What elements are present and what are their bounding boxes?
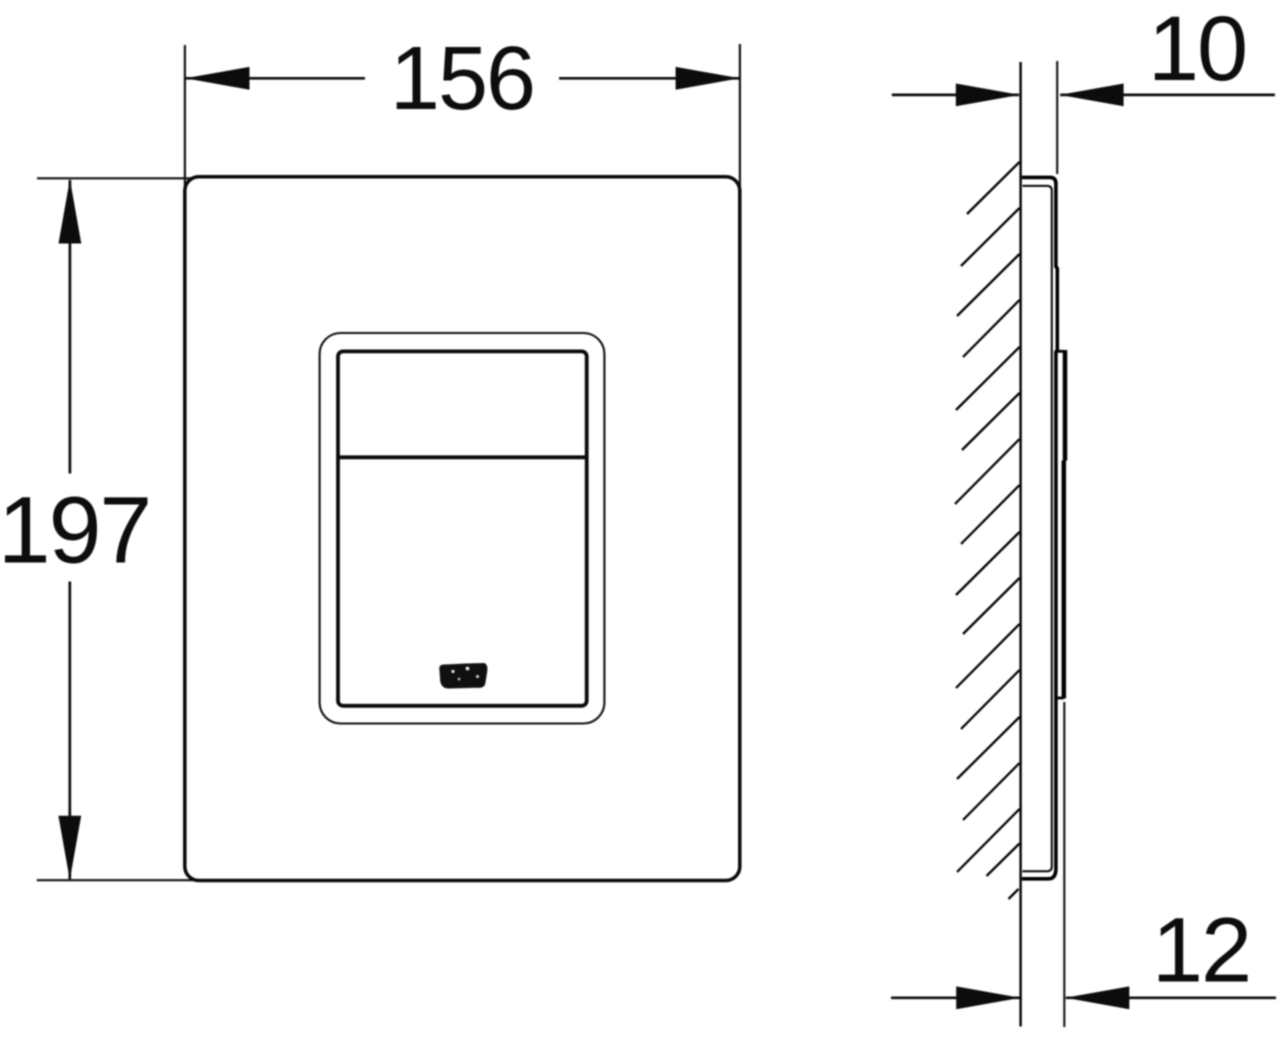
svg-text:10: 10 bbox=[1148, 0, 1246, 100]
svg-text:156: 156 bbox=[390, 29, 534, 129]
svg-text:197: 197 bbox=[0, 478, 150, 584]
svg-text:12: 12 bbox=[1152, 899, 1250, 1001]
